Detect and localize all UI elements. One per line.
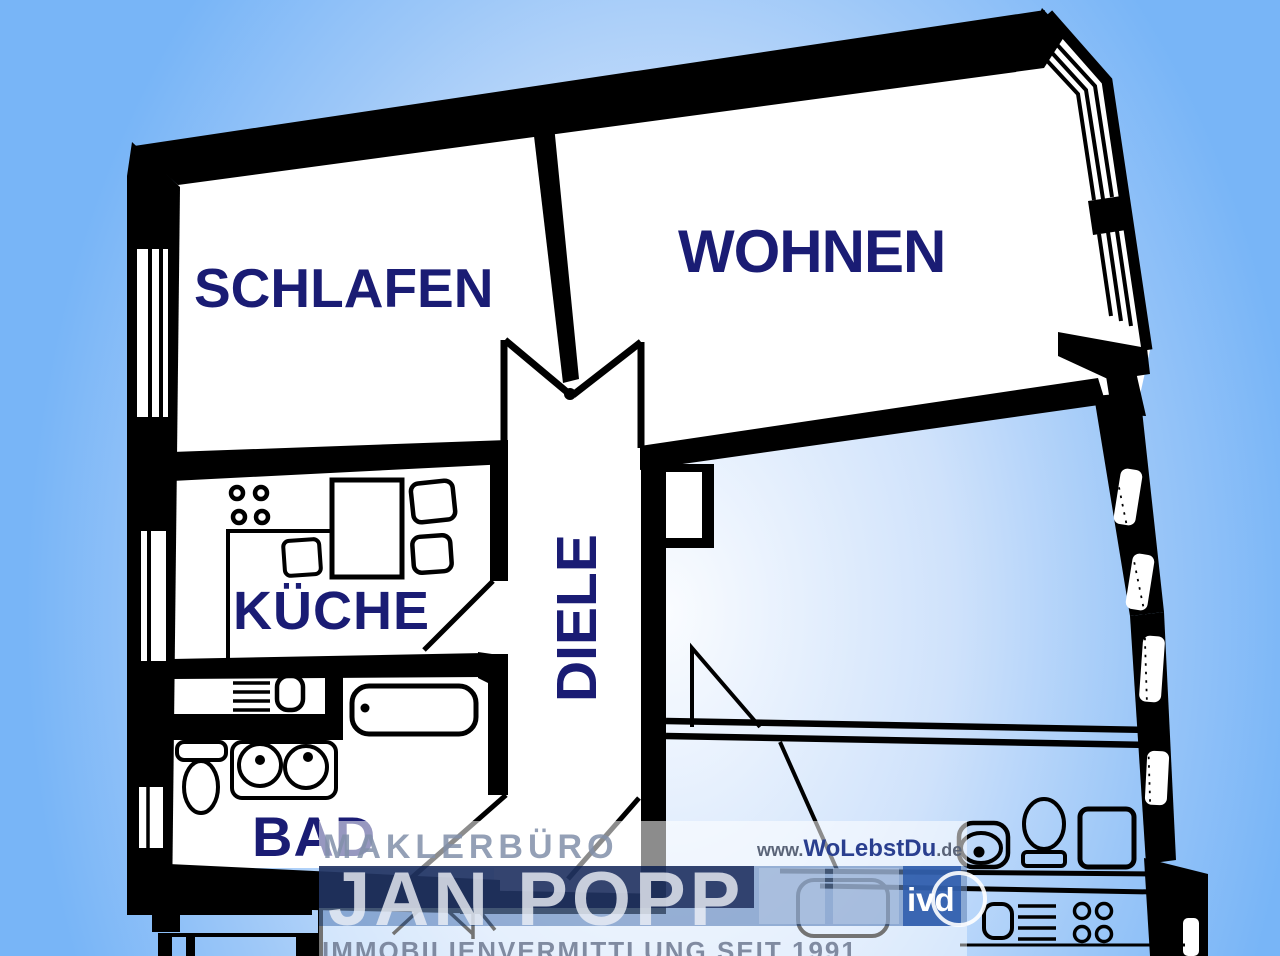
- svg-text:ivd: ivd: [907, 881, 955, 918]
- svg-text:KÜCHE: KÜCHE: [233, 581, 430, 641]
- svg-text:SCHLAFEN: SCHLAFEN: [194, 257, 493, 319]
- svg-text:DIELE: DIELE: [545, 534, 609, 702]
- svg-text:WOHNEN: WOHNEN: [678, 218, 945, 285]
- svg-text:www.WoLebstDu.de: www.WoLebstDu.de: [756, 835, 962, 862]
- svg-text:IMMOBILIENVERMITTLUNG SEIT 199: IMMOBILIENVERMITTLUNG SEIT 1991: [322, 936, 858, 956]
